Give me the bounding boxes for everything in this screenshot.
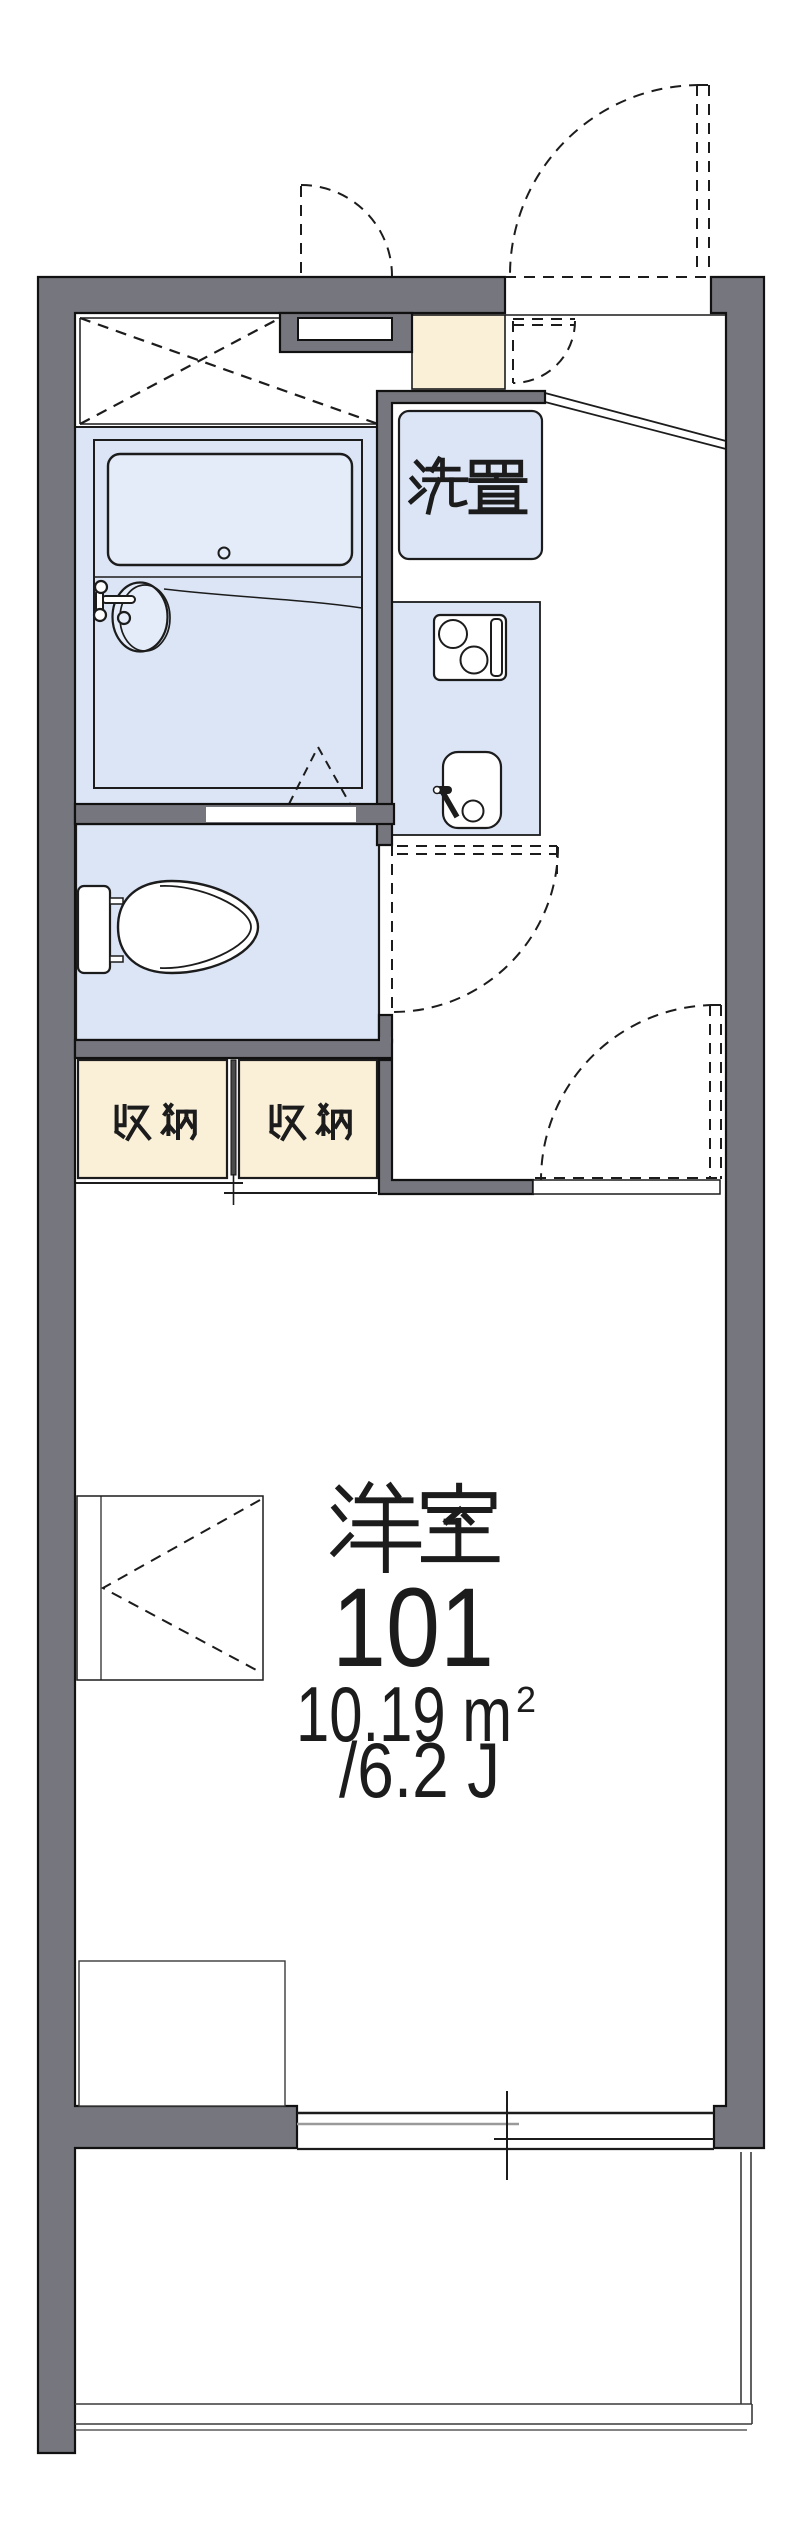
svg-text:/6.2 J: /6.2 J [339, 1726, 500, 1814]
svg-text:2: 2 [516, 1679, 536, 1720]
